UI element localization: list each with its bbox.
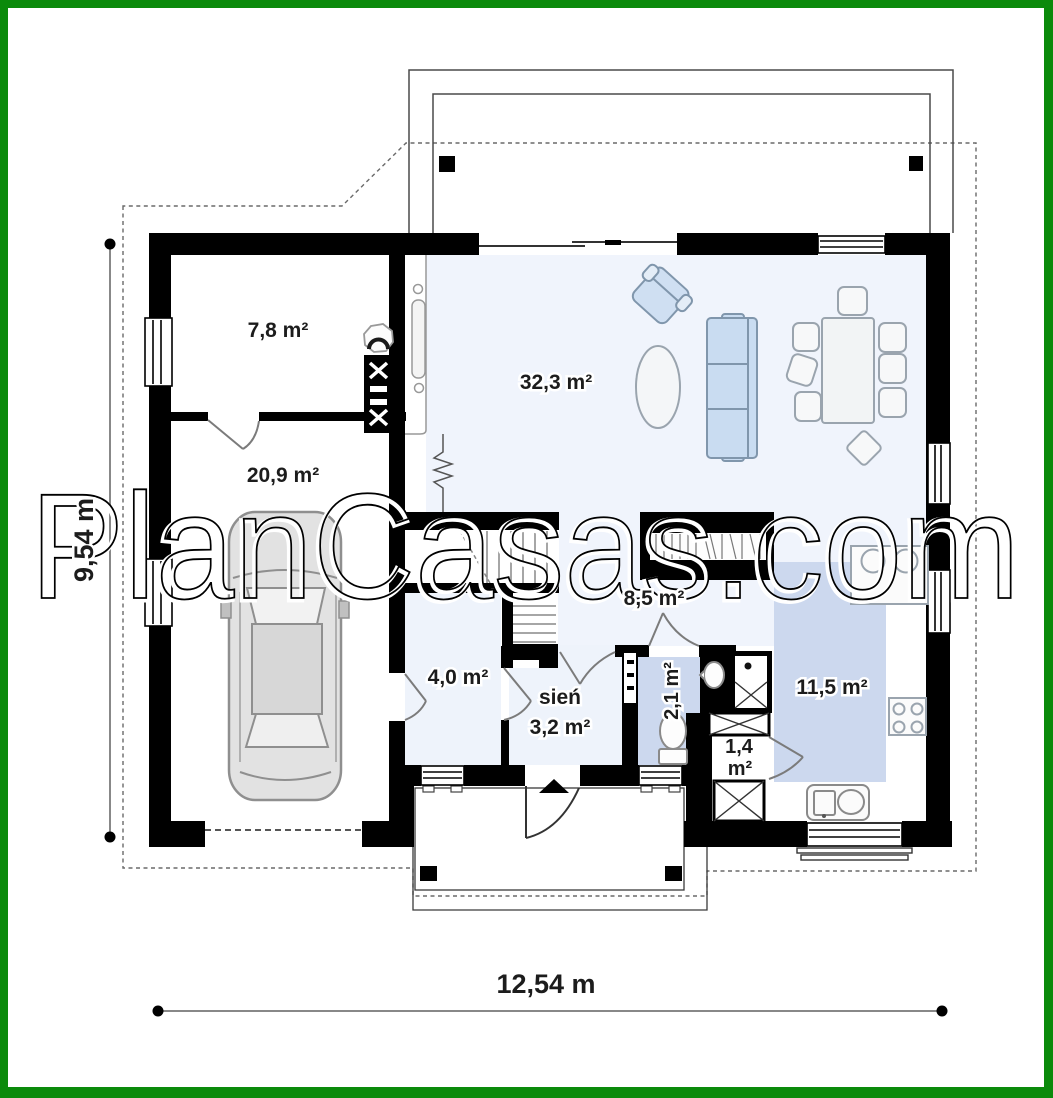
svg-text:32,3 m²: 32,3 m² — [520, 371, 592, 394]
svg-text:9,54 m: 9,54 m — [69, 498, 99, 582]
svg-text:7,8 m²: 7,8 m² — [248, 319, 309, 342]
svg-text:11,5 m²: 11,5 m² — [796, 676, 867, 699]
svg-text:sień: sień — [539, 686, 581, 709]
svg-text:3,2 m²: 3,2 m² — [530, 716, 591, 739]
svg-text:1,4: 1,4 — [725, 736, 754, 758]
svg-text:m²: m² — [728, 758, 753, 780]
svg-text:4,0 m²: 4,0 m² — [428, 666, 489, 689]
svg-text:8,5 m²: 8,5 m² — [624, 587, 685, 610]
svg-text:2,1 m²: 2,1 m² — [661, 662, 683, 720]
svg-text:12,54 m: 12,54 m — [496, 969, 595, 999]
svg-text:PlanCasas.com: PlanCasas.com — [30, 462, 1020, 630]
svg-text:20,9 m²: 20,9 m² — [247, 464, 319, 487]
